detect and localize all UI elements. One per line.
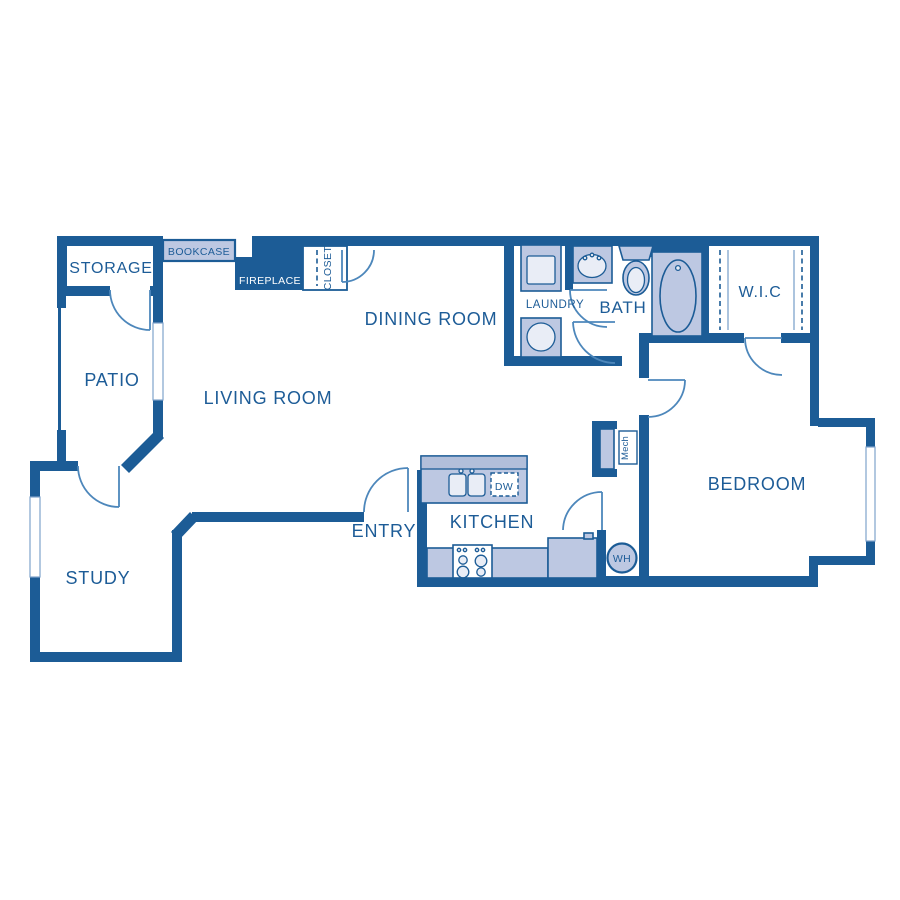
storage-door [110,290,150,330]
kitchen-counter-island: DW [421,456,527,503]
bedroom-window [866,447,875,541]
wall-segment [172,530,182,657]
washer [521,318,561,357]
water-heater-label: WH [613,553,631,565]
room-label-dining-room: DINING ROOM [365,309,498,329]
fireplace-label: FIREPLACE [239,275,301,287]
wall-segment [504,236,514,366]
refrigerator [548,533,597,578]
water-heater: WH [608,544,637,573]
dishwasher-label: DW [495,481,513,493]
wall-segment [192,512,364,522]
wic-door [745,338,782,375]
closet-label: CLOSET [322,246,334,291]
wall-segment [30,577,40,662]
wall-segment [57,288,66,308]
toilet [619,246,653,295]
wall-segment [597,530,606,577]
wall-segment [592,469,617,477]
wall-segment [781,333,818,343]
wall-segment [57,236,163,246]
bookcase-label: BOOKCASE [168,246,230,258]
room-label-patio: PATIO [84,370,139,390]
wall-segment [153,236,163,323]
room-label-laundry: LAUNDRY [526,299,584,311]
room-label-study: STUDY [65,568,130,588]
mech-label: Mech [620,436,631,460]
study-window [30,497,40,577]
room-label-living-room: LIVING ROOM [204,388,333,408]
wall-segment [866,425,875,447]
fireplace: FIREPLACE [235,236,303,290]
wall-segment [30,461,40,497]
patio-study-door [78,466,119,507]
wall-segment [866,541,875,565]
floor-plan-page: BOOKCASE FIREPLACE CLOSET [0,0,900,900]
wall-segment [153,400,163,437]
room-label-bedroom: BEDROOM [708,474,807,494]
wall-segment [565,236,573,290]
stove [453,545,492,578]
wall-segment [30,652,182,662]
bedroom-door [648,380,685,417]
wall-segment [639,415,649,587]
dryer [521,245,561,291]
room-label-storage: STORAGE [69,260,153,277]
wall-segment [818,418,875,427]
wall-segment [809,556,875,565]
wall-segment [121,430,164,473]
room-label-bath: BATH [599,298,646,317]
wall-segment [150,286,163,296]
room-label-entry: ENTRY [352,521,417,541]
floor-plan: BOOKCASE FIREPLACE CLOSET [0,0,900,900]
wall-segment [810,236,819,426]
bookcase: BOOKCASE [163,240,235,261]
kitchen-door [563,492,602,530]
room-label-kitchen: KITCHEN [450,512,535,532]
dishwasher: DW [491,473,518,496]
mechanical-closet: Mech [600,429,637,469]
closet: CLOSET [303,246,347,291]
patio-window [153,323,163,400]
bath-sink [573,246,612,283]
entry-door [364,468,408,512]
room-label-wic: W.I.C [738,284,781,301]
bathtub [652,252,702,336]
windows [30,323,875,577]
wall-segment [592,421,600,477]
wall-segment [58,308,61,430]
